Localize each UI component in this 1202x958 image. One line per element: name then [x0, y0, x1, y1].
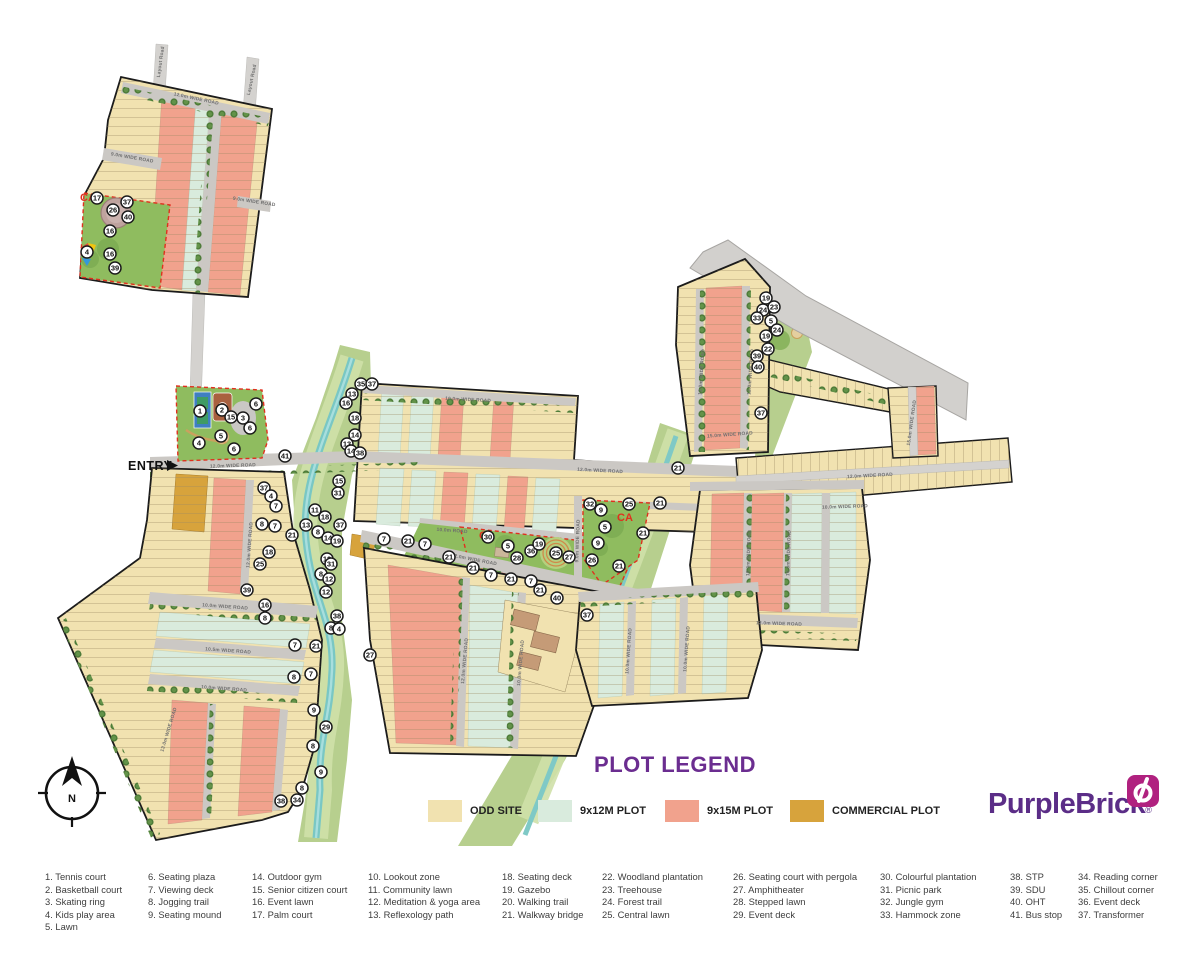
- brand-logo: PurpleBrick®: [988, 788, 1198, 838]
- amenity-legend-column: 18. Seating deck19. Gazebo20. Walking tr…: [502, 871, 583, 921]
- amenity-legend-item: 27. Amphitheater: [733, 884, 857, 897]
- entry-label-group: ENTRY: [128, 459, 178, 473]
- amenity-marker-number: 21: [639, 529, 647, 538]
- amenity-legend-item: 26. Seating court with pergola: [733, 871, 857, 884]
- amenity-legend-item: 39. SDU: [1010, 884, 1062, 897]
- amenity-marker-number: 40: [754, 363, 762, 372]
- plot-legend-title: PLOT LEGEND: [540, 752, 810, 778]
- amenity-marker-number: 21: [615, 562, 623, 571]
- amenity-legend-item: 17. Palm court: [252, 909, 347, 922]
- amenity-marker-number: 2: [220, 406, 224, 415]
- amenity-marker-number: 8: [319, 570, 323, 579]
- amenity-legend-item: 20. Walking trail: [502, 896, 583, 909]
- central-amenity-label: CA: [617, 512, 633, 524]
- amenity-legend-item: 7. Viewing deck: [148, 884, 222, 897]
- amenity-legend-item: 31. Picnic park: [880, 884, 976, 897]
- amenity-legend-item: 5. Lawn: [45, 921, 122, 934]
- amenity-marker-number: 8: [263, 614, 267, 623]
- amenity-legend-column: 10. Lookout zone11. Community lawn12. Me…: [368, 871, 480, 921]
- amenity-legend-column: 14. Outdoor gym15. Senior citizen court1…: [252, 871, 347, 921]
- amenity-legend-item: 25. Central lawn: [602, 909, 703, 922]
- brand-name: PurpleBrick: [988, 788, 1145, 820]
- amenity-marker-number: 37: [583, 611, 591, 620]
- amenity-legend-item: 14. Outdoor gym: [252, 871, 347, 884]
- amenity-marker-number: 25: [552, 549, 560, 558]
- amenity-legend-item: 22. Woodland plantation: [602, 871, 703, 884]
- amenity-marker-number: 9: [596, 539, 600, 548]
- amenity-marker-number: 40: [124, 213, 132, 222]
- amenity-legend-item: 11. Community lawn: [368, 884, 480, 897]
- amenity-marker-number: 21: [469, 564, 477, 573]
- amenity-marker-number: 8: [316, 528, 320, 537]
- amenity-marker-number: 37: [336, 521, 344, 530]
- amenity-marker-number: 7: [309, 670, 313, 679]
- amenity-legend-item: 30. Colourful plantation: [880, 871, 976, 884]
- amenity-legend-item: 33. Hammock zone: [880, 909, 976, 922]
- amenity-marker-number: 8: [260, 520, 264, 529]
- amenity-marker-number: 21: [288, 531, 296, 540]
- amenity-marker-number: 28: [513, 554, 521, 563]
- amenity-marker-number: 7: [529, 577, 533, 586]
- amenity-marker-number: 31: [334, 489, 342, 498]
- amenity-marker-number: 21: [536, 586, 544, 595]
- amenity-legend-item: 40. OHT: [1010, 896, 1062, 909]
- amenity-marker-number: 21: [507, 575, 515, 584]
- amenity-marker-number: 21: [656, 499, 664, 508]
- amenity-marker-number: 39: [243, 586, 251, 595]
- amenity-marker-number: 6: [232, 445, 236, 454]
- amenity-marker-number: 26: [588, 556, 596, 565]
- amenity-legend-item: 34. Reading corner: [1078, 871, 1158, 884]
- amenity-legend-item: 23. Treehouse: [602, 884, 703, 897]
- amenity-marker-number: 13: [302, 521, 310, 530]
- legend-item: 9x12M PLOT: [538, 799, 646, 822]
- amenity-legend-item: 12. Meditation & yoga area: [368, 896, 480, 909]
- amenity-legend-item: 41. Bus stop: [1010, 909, 1062, 922]
- legend-swatch: [665, 800, 699, 822]
- amenity-legend-item: 9. Seating mound: [148, 909, 222, 922]
- amenity-marker-number: 39: [111, 264, 119, 273]
- amenity-marker-number: 7: [423, 540, 427, 549]
- amenity-marker-number: 19: [762, 332, 770, 341]
- amenity-legend-item: 35. Chillout corner: [1078, 884, 1158, 897]
- amenity-marker-number: 23: [770, 303, 778, 312]
- amenity-marker-number: 3: [241, 414, 245, 423]
- amenity-marker-number: 19: [535, 540, 543, 549]
- amenity-marker-number: 16: [106, 227, 114, 236]
- amenity-marker-number: 24: [773, 326, 782, 335]
- amenity-legend-item: 24. Forest trail: [602, 896, 703, 909]
- amenity-marker-number: 22: [764, 345, 772, 354]
- site-plan-poster: { "plot_legend": { "title": "PLOT LEGEND…: [0, 0, 1202, 958]
- amenity-marker-number: 35: [357, 380, 365, 389]
- amenity-marker-number: 19: [762, 294, 770, 303]
- amenity-legend-item: 4. Kids play area: [45, 909, 122, 922]
- amenity-marker-number: 7: [274, 502, 278, 511]
- amenity-legend-item: 18. Seating deck: [502, 871, 583, 884]
- amenity-marker-number: 38: [356, 449, 364, 458]
- legend-label: 9x15M PLOT: [707, 805, 773, 817]
- amenity-marker-number: 9: [599, 506, 603, 515]
- amenity-marker-number: 8: [292, 673, 296, 682]
- amenity-marker-number: 7: [489, 571, 493, 580]
- amenity-legend-item: 37. Transformer: [1078, 909, 1158, 922]
- legend-item: ODD SITE: [428, 799, 522, 822]
- amenity-legend-column: 26. Seating court with pergola27. Amphit…: [733, 871, 857, 921]
- amenity-marker-number: 18: [265, 548, 273, 557]
- legend-item: 9x15M PLOT: [665, 799, 773, 822]
- block-northwest: [80, 77, 272, 297]
- amenity-legend-column: 38. STP39. SDU40. OHT41. Bus stop: [1010, 871, 1062, 921]
- amenity-marker-number: 18: [351, 414, 359, 423]
- amenity-marker-number: 21: [312, 642, 320, 651]
- amenity-marker-number: 21: [404, 537, 412, 546]
- amenity-legend-item: 8. Jogging trail: [148, 896, 222, 909]
- amenity-marker-number: 17: [93, 194, 101, 203]
- amenity-marker-number: 41: [281, 452, 289, 461]
- amenity-legend-item: 10. Lookout zone: [368, 871, 480, 884]
- amenity-marker-number: 19: [333, 537, 341, 546]
- amenity-marker-number: 9: [319, 768, 323, 777]
- north-arrow-icon: [62, 756, 82, 786]
- amenity-legend-item: 6. Seating plaza: [148, 871, 222, 884]
- amenity-marker-number: 21: [674, 464, 682, 473]
- amenity-marker-number: 27: [565, 553, 573, 562]
- amenity-marker-number: 16: [342, 399, 350, 408]
- amenity-marker-number: 12: [325, 575, 333, 584]
- legend-swatch: [538, 800, 572, 822]
- amenity-legend-column: 6. Seating plaza7. Viewing deck8. Joggin…: [148, 871, 222, 921]
- amenity-legend-item: 32. Jungle gym: [880, 896, 976, 909]
- amenity-legend-item: 2. Basketball court: [45, 884, 122, 897]
- amenity-legend-column: 34. Reading corner35. Chillout corner36.…: [1078, 871, 1158, 921]
- amenity-marker-number: 37: [757, 409, 765, 418]
- amenity-marker-number: 12: [322, 588, 330, 597]
- legend-label: ODD SITE: [470, 805, 522, 817]
- amenity-marker-number: 39: [753, 352, 761, 361]
- amenity-marker-number: 8: [300, 784, 304, 793]
- amenity-marker-number: 40: [553, 594, 561, 603]
- legend-item: COMMERCIAL PLOT: [790, 799, 940, 822]
- amenity-marker-number: 6: [248, 424, 252, 433]
- brand-icon: [1126, 774, 1160, 808]
- amenity-marker-number: 29: [322, 723, 330, 732]
- amenity-legend-item: 1. Tennis court: [45, 871, 122, 884]
- amenity-legend-item: 28. Stepped lawn: [733, 896, 857, 909]
- entry-label: ENTRY: [128, 459, 173, 473]
- amenity-marker-number: 26: [109, 206, 117, 215]
- legend-label: COMMERCIAL PLOT: [832, 805, 940, 817]
- amenity-marker-number: 11: [311, 506, 319, 515]
- legend-label: 9x12M PLOT: [580, 805, 646, 817]
- amenity-marker-number: 25: [256, 560, 264, 569]
- amenity-marker-number: 7: [273, 522, 277, 531]
- amenity-legend-column: 1. Tennis court2. Basketball court3. Ska…: [45, 871, 122, 934]
- amenity-marker-number: 18: [321, 513, 329, 522]
- block-southeast: [576, 582, 762, 706]
- amenity-legend-item: 38. STP: [1010, 871, 1062, 884]
- amenity-legend-column: 22. Woodland plantation23. Treehouse24. …: [602, 871, 703, 921]
- amenity-marker-number: 34: [293, 796, 302, 805]
- north-label: N: [68, 793, 76, 805]
- amenity-marker-number: 37: [123, 198, 131, 207]
- amenity-marker-number: 9: [312, 706, 316, 715]
- amenity-marker-number: 7: [382, 535, 386, 544]
- amenity-legend-item: 19. Gazebo: [502, 884, 583, 897]
- amenity-marker-number: 27: [366, 651, 374, 660]
- amenity-legend-item: 15. Senior citizen court: [252, 884, 347, 897]
- amenity-marker-number: 31: [327, 560, 335, 569]
- amenity-marker-number: 1: [198, 407, 202, 416]
- amenity-marker-number: 5: [603, 523, 607, 532]
- amenity-marker-number: 14: [351, 431, 360, 440]
- amenity-marker-number: 15: [227, 413, 235, 422]
- amenity-marker-number: 38: [277, 797, 285, 806]
- amenity-legend-item: 21. Walkway bridge: [502, 909, 583, 922]
- amenity-legend-item: 3. Skating ring: [45, 896, 122, 909]
- amenity-legend-column: 30. Colourful plantation31. Picnic park3…: [880, 871, 976, 921]
- amenity-marker-number: 5: [769, 317, 773, 326]
- amenity-marker-number: 32: [586, 500, 594, 509]
- amenity-marker-number: 16: [106, 250, 114, 259]
- amenity-marker-number: 16: [261, 601, 269, 610]
- amenity-marker-number: 30: [484, 533, 492, 542]
- amenity-marker-number: 5: [219, 432, 223, 441]
- amenity-legend-item: 16. Event lawn: [252, 896, 347, 909]
- amenity-marker-number: 25: [625, 500, 633, 509]
- legend-swatch: [790, 800, 824, 822]
- amenity-marker-number: 21: [445, 553, 453, 562]
- compass: N: [38, 756, 106, 827]
- amenity-legend-item: 36. Event deck: [1078, 896, 1158, 909]
- amenity-marker-number: 33: [753, 314, 761, 323]
- amenity-marker-number: 5: [506, 542, 510, 551]
- amenity-marker-number: 38: [333, 612, 341, 621]
- amenity-legend-item: 13. Reflexology path: [368, 909, 480, 922]
- legend-swatch: [428, 800, 462, 822]
- amenity-marker-number: 37: [368, 380, 376, 389]
- amenity-marker-number: 7: [293, 641, 297, 650]
- amenity-marker-number: 15: [335, 477, 343, 486]
- amenity-legend-item: 29. Event deck: [733, 909, 857, 922]
- amenity-marker-number: 6: [254, 400, 258, 409]
- amenity-marker-number: 8: [311, 742, 315, 751]
